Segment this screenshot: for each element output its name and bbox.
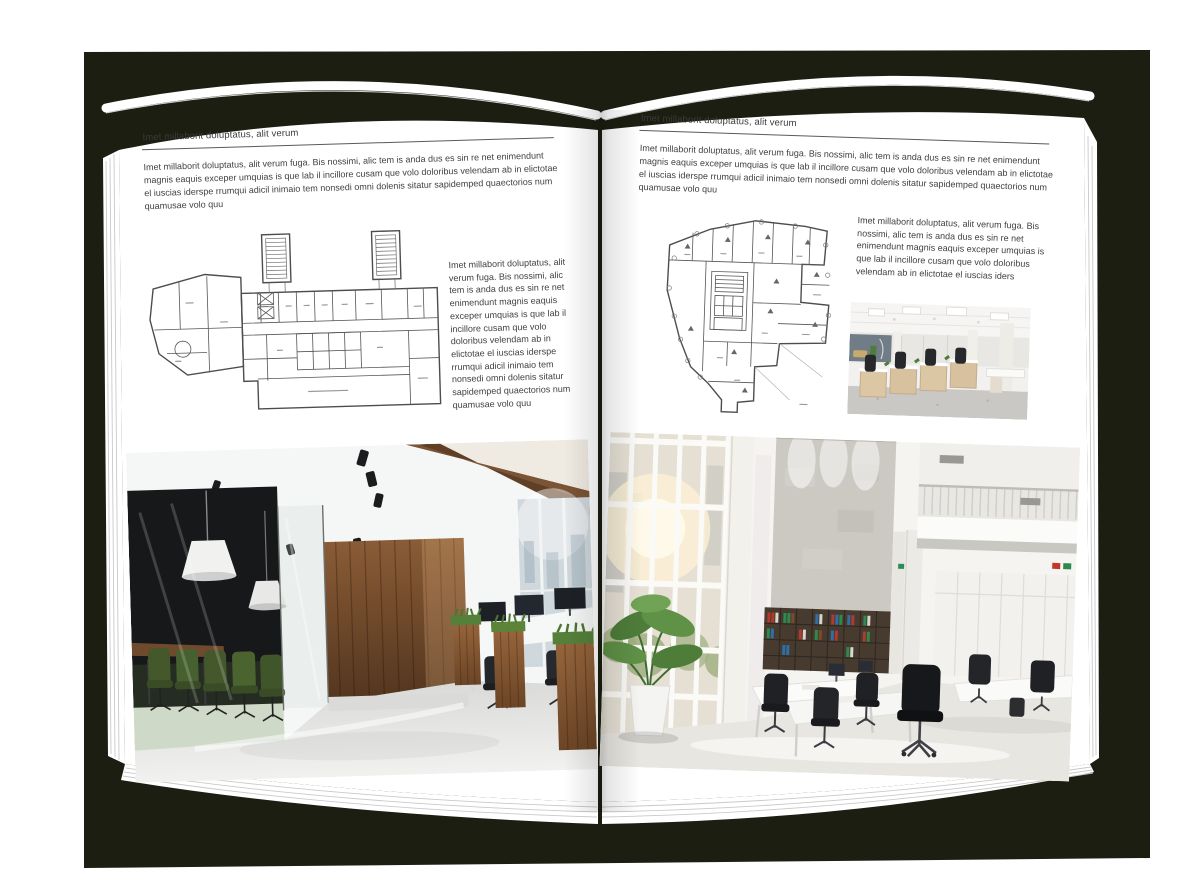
- right-office-photo: [599, 432, 1080, 781]
- right-intro-paragraph: Imet millaborit doluptatus, alit verum f…: [638, 142, 1059, 208]
- conference-room: [127, 486, 291, 751]
- concrete-wall: [771, 432, 897, 611]
- left-page-header: Imet millaborit doluptatus, alit verum: [142, 128, 298, 144]
- magazine-spread-mockup: Imet millaborit doluptatus, alit verum I…: [0, 0, 1200, 891]
- right-page-header: Imet millaborit doluptatus, alit verum: [641, 113, 797, 129]
- right-header-rule: [639, 130, 1049, 145]
- mezzanine-balcony: [917, 442, 1080, 553]
- right-floorplan-image: [649, 209, 851, 420]
- left-office-photo: [126, 439, 598, 783]
- right-small-office-photo: [847, 302, 1031, 420]
- cabinet-wall: [933, 559, 1077, 680]
- left-intro-paragraph: Imet millaborit doluptatus, alit verum f…: [143, 149, 560, 213]
- binder-bookshelf: [763, 607, 895, 673]
- right-side-text: Imet millaborit doluptatus, alit verum f…: [856, 214, 1056, 284]
- right-page: Imet millaborit doluptatus, alit verum I…: [605, 96, 1094, 801]
- glass-partition: [278, 505, 329, 710]
- left-side-text: Imet millaborit doluptatus, alit verum f…: [448, 256, 573, 412]
- left-page: Imet millaborit doluptatus, alit verum I…: [120, 109, 598, 792]
- left-floorplan-image: [143, 225, 448, 419]
